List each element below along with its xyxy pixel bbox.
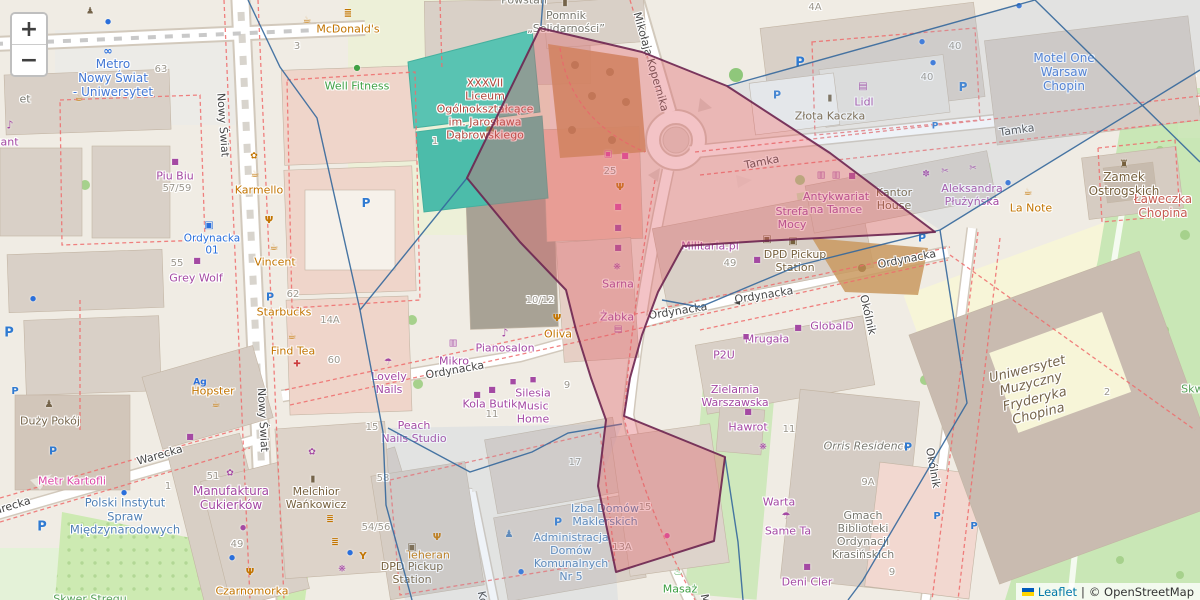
vector-overlay-layer bbox=[0, 0, 1200, 600]
ukraine-flag-icon bbox=[1022, 588, 1034, 596]
leaflet-link[interactable]: Leaflet bbox=[1038, 585, 1077, 599]
voronoi-cell-tint[interactable] bbox=[386, 424, 622, 600]
zoom-out-button[interactable]: − bbox=[12, 45, 46, 75]
zoom-control: + − bbox=[10, 12, 48, 77]
attribution-bar: Leaflet | © OpenStreetMap bbox=[1016, 583, 1200, 600]
zoom-in-button[interactable]: + bbox=[12, 14, 46, 45]
map-canvas[interactable]: Nowy ŚwiatNowy ŚwiatWareckaWareckaOrdyna… bbox=[0, 0, 1200, 600]
attribution-separator: | bbox=[1081, 585, 1085, 599]
osm-copyright: © OpenStreetMap bbox=[1089, 585, 1194, 599]
